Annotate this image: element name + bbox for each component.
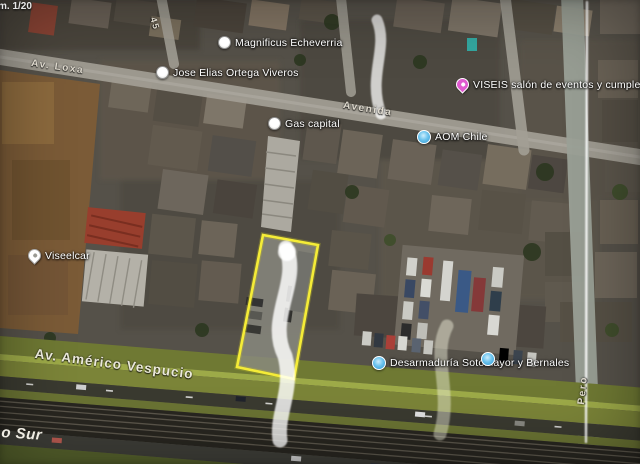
blue-circle-pin-icon[interactable] — [481, 352, 495, 366]
white-circle-pin-icon[interactable] — [218, 36, 231, 49]
poi-magnificus[interactable]: Magnificus Echeverria — [218, 36, 343, 49]
pink-drop-pin-icon[interactable] — [453, 75, 471, 93]
annotation-stroke-top — [376, 20, 381, 114]
map-container[interactable]: m. 1/20 Av. Loxa 45 Magnificus Echeverri… — [0, 0, 640, 464]
white-circle-pin-icon[interactable] — [156, 66, 169, 79]
poi-jose-elias[interactable]: Jose Elias Ortega Viveros — [156, 66, 299, 79]
white-drop-pin-icon[interactable] — [25, 246, 43, 264]
satellite-imagery — [0, 0, 640, 464]
poi-viseis[interactable]: VISEIS salón de eventos y cumpleaños — [456, 78, 640, 91]
watermark-text: m. 1/20 — [0, 1, 32, 12]
poi-aom-chile[interactable]: AOM Chile — [417, 130, 488, 144]
poi-desarmaduria[interactable]: Desarmaduría Sotomayor y Bernales — [372, 356, 569, 370]
blue-circle-pin-icon[interactable] — [417, 130, 431, 144]
annotation-stroke-right — [440, 326, 447, 434]
street-label-o-sur: o Sur — [1, 424, 43, 444]
poi-gas-capital[interactable]: Gas capital — [268, 117, 340, 130]
poi-viseelcar[interactable]: Viseelcar — [28, 249, 90, 262]
desarmaduria-second-pin[interactable] — [481, 352, 495, 366]
blue-circle-pin-icon[interactable] — [372, 356, 386, 370]
white-circle-pin-icon[interactable] — [268, 117, 281, 130]
watermark: m. 1/20 — [0, 1, 32, 12]
